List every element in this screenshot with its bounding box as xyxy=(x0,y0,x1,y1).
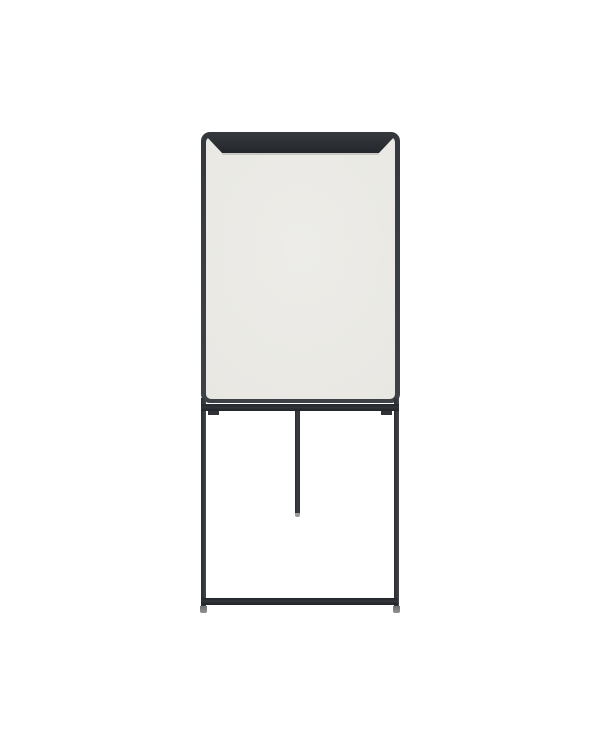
whiteboard-frame xyxy=(201,132,400,403)
tray-crossbar xyxy=(201,404,399,411)
left-foot xyxy=(200,606,207,613)
left-leg xyxy=(201,398,206,609)
right-tray-bracket xyxy=(381,411,392,415)
right-leg xyxy=(394,398,399,609)
clamp-shadow xyxy=(222,153,379,155)
bottom-crossbar xyxy=(202,598,398,605)
right-foot xyxy=(393,606,400,613)
center-support-pole xyxy=(295,411,300,513)
paper-clamp-bar xyxy=(206,136,395,153)
flipchart-easel xyxy=(0,0,600,744)
center-pole-tip xyxy=(295,513,300,517)
photo-background xyxy=(0,0,600,744)
whiteboard-surface xyxy=(206,137,395,399)
left-tray-bracket xyxy=(208,411,219,415)
